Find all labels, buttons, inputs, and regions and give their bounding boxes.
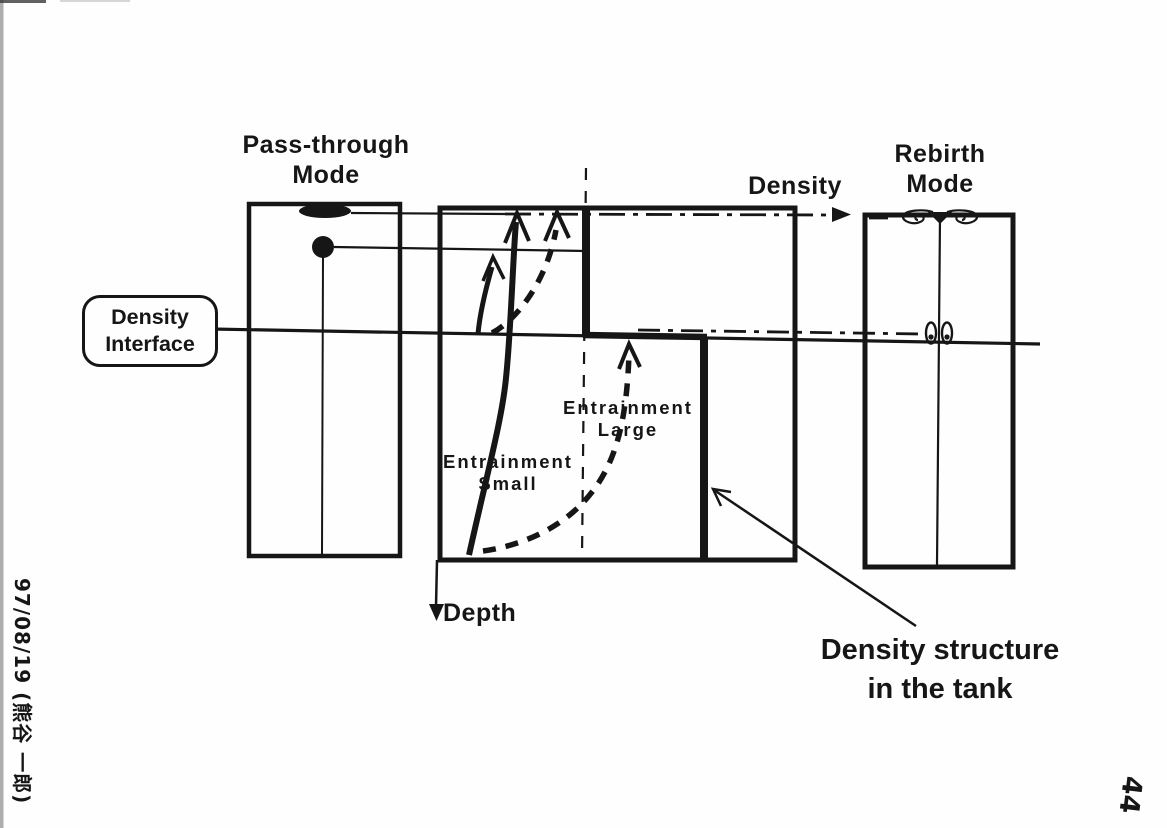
interface-vortex-left-icon (926, 323, 936, 344)
scan-edge-top (0, 0, 46, 3)
density-axis-arrowhead (832, 207, 851, 222)
scanned-diagram-page: Pass-through Mode Rebirth Mode Density I… (0, 0, 1167, 828)
surface-level-connector (351, 213, 505, 214)
handwritten-date: 97/08/19 (熊谷 一郎) (10, 578, 38, 818)
density-interface-callout: Density Interface (82, 295, 218, 367)
interface-vortex-left-core (928, 334, 933, 339)
depth-axis-line (436, 560, 437, 607)
pass-through-mode-label: Pass-through Mode (233, 130, 419, 190)
page-number: 44 (1112, 774, 1148, 825)
rebirth-center-line (937, 217, 940, 565)
interface-vortex-right-icon (942, 323, 952, 344)
depth-axis-label: Depth (443, 599, 516, 628)
entrainment-large-profile-upper (492, 230, 556, 333)
rebirth-mode-label: Rebirth Mode (865, 139, 1015, 199)
density-structure-label: Density structure in the tank (788, 631, 1092, 709)
density-axis-label: Density (740, 172, 850, 201)
interface-step-segment (583, 335, 707, 337)
pass-through-plume-line (322, 256, 323, 554)
entrainment-small-label: Entrainment Small (438, 451, 578, 495)
surface-source-ellipse (299, 204, 351, 218)
rebirth-top-wedge (928, 212, 952, 224)
interface-vortex-right-core (944, 334, 949, 339)
dense-blob-circle (312, 236, 334, 258)
entrainment-large-label: Entrainment Large (558, 397, 698, 441)
scan-smudge-top (60, 0, 130, 2)
depth-axis-arrowhead (429, 604, 444, 621)
scan-edge-left (0, 0, 4, 828)
